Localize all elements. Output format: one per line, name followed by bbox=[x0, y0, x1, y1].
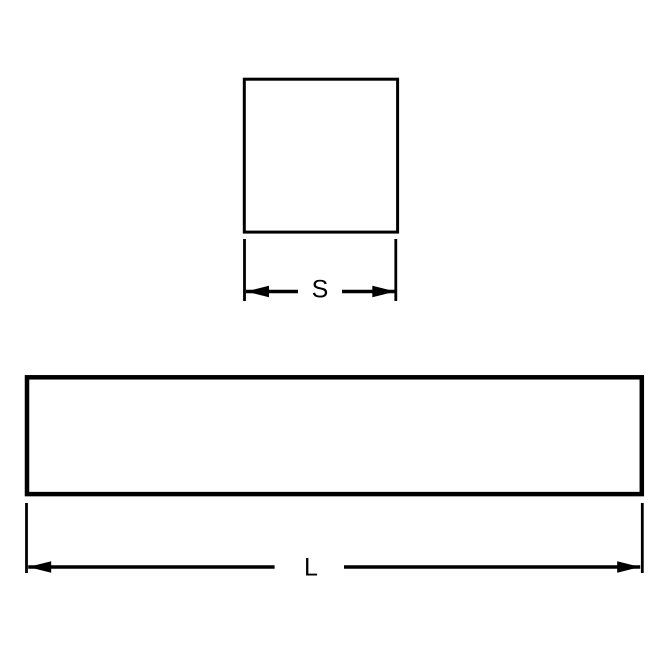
svg-text:L: L bbox=[304, 554, 318, 582]
svg-text:S: S bbox=[312, 276, 329, 304]
